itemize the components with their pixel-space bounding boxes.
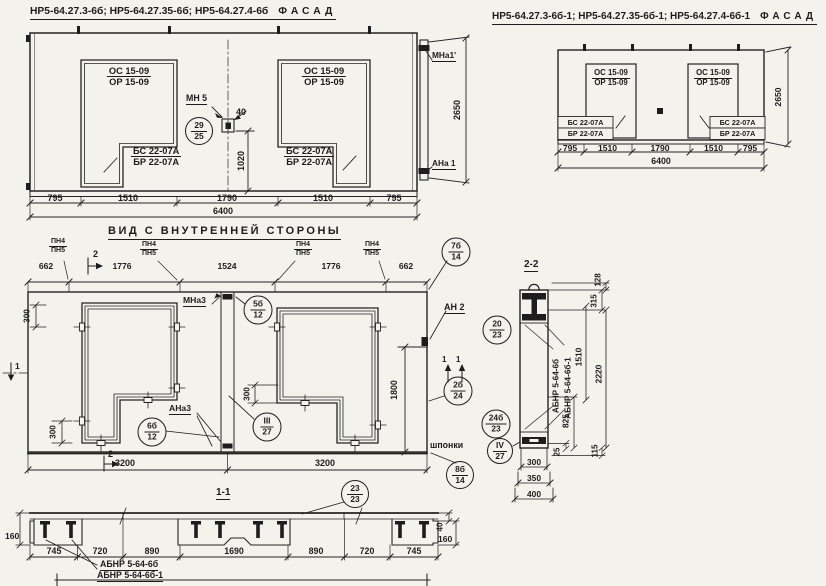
panel-mark-abnr: АБНР 5-64-6б — [551, 359, 560, 413]
section-1-1-view — [16, 502, 459, 586]
dim-300: 300 — [48, 425, 57, 439]
panel-mark-abnr-1: АБНР 5-64-6б-1 — [563, 357, 572, 418]
callout-29-25: 2925 — [185, 117, 213, 145]
dim-1510: 1510 — [704, 144, 723, 154]
dim-25: 25 — [554, 448, 563, 457]
pn-mark: ПН4ПН5 — [363, 241, 381, 258]
dim-3200: 3200 — [115, 458, 135, 468]
dim-745: 745 — [407, 547, 422, 557]
dim-40: 40 — [236, 107, 246, 117]
dim-1690: 1690 — [224, 547, 244, 557]
sill-mark: БР 22-07А — [720, 130, 756, 138]
pn-mark: ПН4ПН5 — [140, 241, 158, 258]
dim-1510: 1510 — [313, 193, 333, 203]
dim-795: 795 — [47, 193, 62, 203]
section-2-2-title: 2-2 — [524, 259, 538, 272]
fasad-right-view-word: ФАСАД — [760, 11, 817, 22]
dim-350: 350 — [527, 474, 541, 483]
mna1-label: МНа1' — [432, 51, 456, 62]
dim-115: 115 — [592, 445, 601, 458]
dim-160: 160 — [438, 535, 452, 545]
section-marker-2: 2 — [93, 249, 98, 259]
center-joint-strip — [221, 292, 234, 452]
section-marker-1: 1 — [15, 362, 20, 372]
fasad-left-view — [26, 26, 469, 220]
dim-400: 400 — [527, 490, 541, 499]
dim-1776: 1776 — [321, 262, 340, 272]
dim-300: 300 — [527, 458, 541, 467]
dim-1800: 1800 — [390, 380, 400, 400]
sill-mark: БР 22-07А — [568, 130, 604, 138]
dim-1776: 1776 — [112, 262, 131, 272]
sill-mark-left: БС 22-07АБР 22-07А — [131, 146, 181, 168]
callout-5b-12: 5б12 — [244, 296, 273, 325]
panel-mark-abnr-1: АБНР 5-64-6б-1 — [97, 571, 163, 582]
dim-1510: 1510 — [598, 144, 617, 154]
section-marker-1: 1 — [456, 356, 460, 365]
callout-24b-23: 24б23 — [482, 410, 511, 439]
dim-160: 160 — [5, 532, 19, 542]
dim-745: 745 — [47, 547, 62, 557]
sill-mark: БС 22-07А — [568, 119, 604, 127]
dim-2650: 2650 — [452, 100, 462, 120]
dim-1510: 1510 — [574, 348, 583, 367]
ana1-label: АНа 1 — [432, 159, 456, 170]
dim-2220: 2220 — [594, 365, 603, 384]
dim-1790: 1790 — [650, 144, 669, 154]
dim-1524: 1524 — [217, 262, 236, 272]
rib-anchors — [40, 521, 429, 538]
drawing-linework — [0, 0, 826, 586]
pn-mark: ПН4ПН5 — [49, 238, 67, 255]
dim-128: 128 — [595, 273, 604, 286]
mna3-label: МНа3 — [183, 296, 206, 307]
dim-40: 40 — [437, 523, 446, 532]
sill-mark: БС 22-07А — [720, 119, 756, 127]
section-1-1-title: 1-1 — [216, 487, 230, 500]
dim-720: 720 — [93, 547, 108, 557]
dim-890: 890 — [145, 547, 160, 557]
callout-2b-24: 2б24 — [444, 377, 473, 406]
callout-20-23: 2023 — [483, 316, 512, 345]
dim-795: 795 — [563, 144, 577, 154]
dim-662: 662 — [39, 262, 53, 272]
dim-300: 300 — [22, 309, 31, 323]
dim-795: 795 — [743, 144, 757, 154]
callout-7b-14: 7б14 — [442, 238, 471, 267]
side-view-bar — [420, 40, 428, 180]
window-mark-right: ОС 15-09ОР 15-09 — [302, 66, 346, 88]
dim-890: 890 — [309, 547, 324, 557]
shponki-label: шпонки — [430, 441, 463, 451]
fasad-right-codes: НР5-64.27.3-6б-1; НР5-64.27.35-6б-1; НР5… — [492, 11, 750, 22]
dim-1790: 1790 — [217, 193, 237, 203]
window-mark-left: ОС 15-09ОР 15-09 — [107, 66, 151, 88]
callout-8b-14: 8б14 — [446, 461, 474, 489]
window-frame — [277, 308, 378, 443]
an2-label: АН 2 — [444, 302, 465, 314]
dim-795: 795 — [386, 193, 401, 203]
dim-1510: 1510 — [118, 193, 138, 203]
dim-315: 315 — [591, 294, 600, 307]
section-marker-2: 2 — [108, 449, 113, 459]
sill-mark-right: БС 22-07АБР 22-07А — [284, 146, 334, 168]
dim-300: 300 — [242, 387, 251, 401]
fasad-left-title: НР5-64.27.3-6б; НР5-64.27.35-6б; НР5-64.… — [30, 6, 336, 20]
dim-825: 825 — [561, 414, 570, 428]
fasad-right-title: НР5-64.27.3-6б-1; НР5-64.27.35-6б-1; НР5… — [492, 11, 817, 25]
dim-720: 720 — [360, 547, 375, 557]
section-marker-1: 1 — [442, 356, 446, 365]
window-mark-left: ОС 15-09ОР 15-09 — [592, 69, 630, 87]
inner-view-title: ВИД С ВНУТРЕННЕЙ СТОРОНЫ — [108, 225, 341, 240]
dim-662: 662 — [399, 262, 413, 272]
mn5-label: МН 5 — [186, 94, 207, 105]
callout-III-27: III27 — [253, 413, 282, 442]
callout-23-23: 2323 — [341, 480, 369, 508]
ana3-label: АНа3 — [169, 404, 191, 415]
dim-2650: 2650 — [774, 87, 784, 106]
dim-6400: 6400 — [651, 157, 671, 167]
dim-6400: 6400 — [213, 206, 233, 216]
pn-mark: ПН4ПН5 — [294, 241, 312, 258]
callout-6b-12: 6б12 — [138, 418, 167, 447]
callout-IV-27: IV27 — [487, 438, 513, 464]
dim-3200: 3200 — [315, 458, 335, 468]
fasad-left-codes: НР5-64.27.3-6б; НР5-64.27.35-6б; НР5-64.… — [30, 6, 268, 17]
drawing-sheet: НР5-64.27.3-6б; НР5-64.27.35-6б; НР5-64.… — [0, 0, 826, 586]
fasad-left-view-word: ФАСАД — [278, 6, 336, 17]
dim-1020: 1020 — [236, 151, 246, 171]
window-mark-right: ОС 15-09ОР 15-09 — [694, 69, 732, 87]
